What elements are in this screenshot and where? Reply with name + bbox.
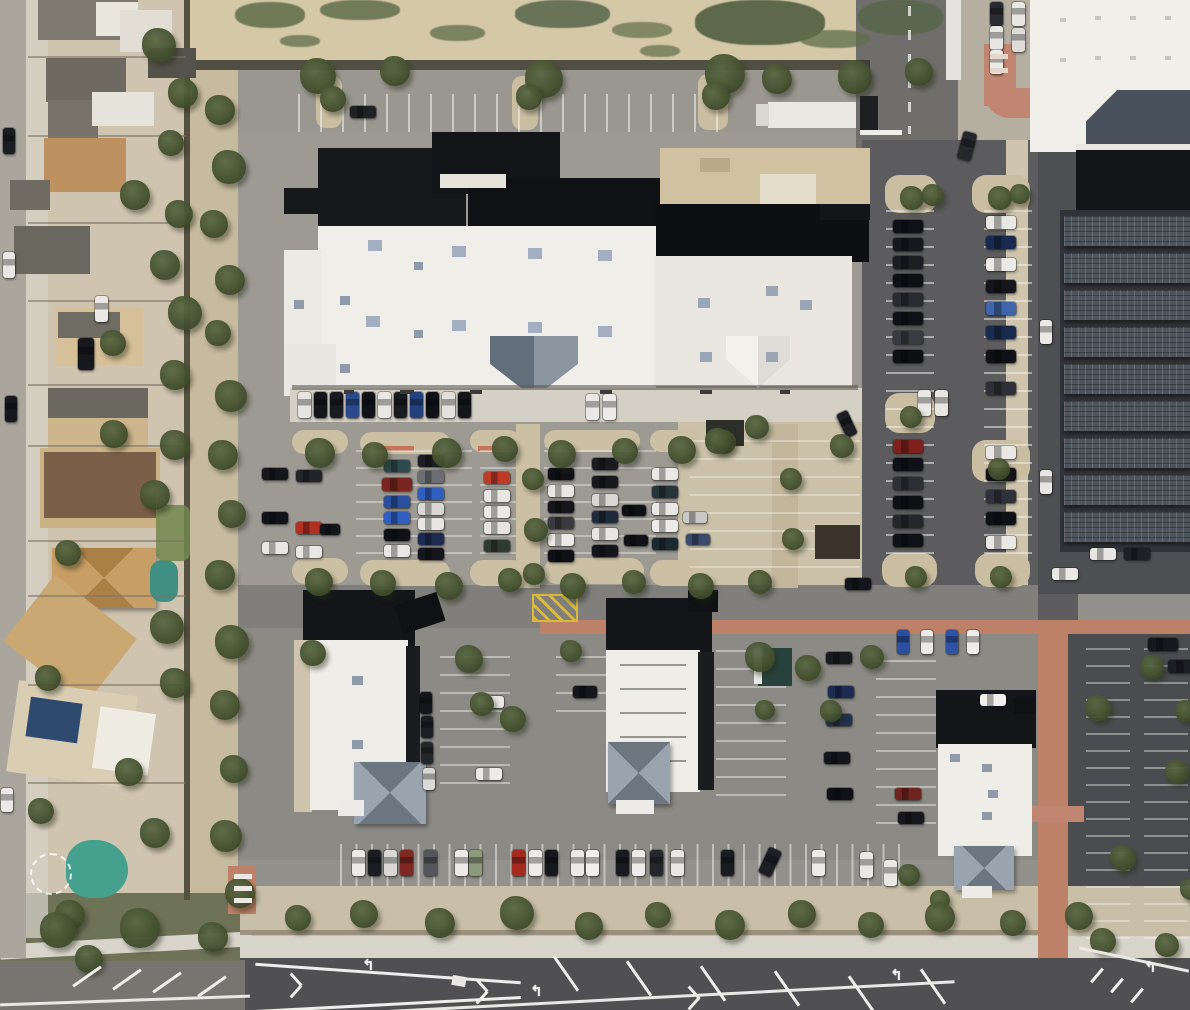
tree: [160, 430, 190, 460]
hvac: [982, 812, 992, 820]
car: [384, 496, 410, 508]
car: [1124, 548, 1150, 560]
tree: [860, 645, 884, 669]
car: [262, 468, 288, 480]
tree: [898, 864, 920, 886]
scrub: [640, 45, 680, 57]
tree: [215, 625, 249, 659]
roof-dot: [1165, 56, 1171, 60]
anchor-west-wing: [284, 250, 322, 346]
tree: [142, 28, 176, 62]
tree: [35, 665, 61, 691]
driveway-car: [78, 338, 94, 370]
padB-east-strip: [698, 652, 714, 790]
car: [721, 850, 734, 876]
car: [893, 238, 923, 251]
padB-tower-pyramid: [608, 742, 670, 804]
car: [898, 812, 924, 824]
car: [421, 716, 433, 738]
tree: [198, 922, 228, 952]
driveway-car: [95, 296, 108, 322]
car: [893, 458, 923, 471]
tree: [320, 86, 346, 112]
crosswalk-dash: [234, 898, 252, 903]
car: [812, 850, 825, 876]
house-roof: [48, 388, 148, 420]
solar-panel-array: [25, 697, 82, 744]
tree: [1155, 933, 1179, 957]
car: [484, 506, 510, 518]
tree: [622, 570, 646, 594]
car: [548, 534, 574, 546]
hvac: [698, 298, 710, 308]
car: [484, 490, 510, 502]
car: [980, 694, 1006, 706]
hvac: [340, 296, 350, 305]
roof-dot: [1130, 56, 1136, 60]
car: [418, 548, 444, 560]
car: [986, 326, 1016, 339]
car: [352, 850, 365, 876]
tree: [645, 902, 671, 928]
car: [632, 850, 645, 876]
tree: [305, 438, 335, 468]
tree: [925, 902, 955, 932]
tree: [1140, 655, 1164, 679]
car: [320, 524, 340, 535]
house-roof: [92, 92, 154, 126]
car: [622, 505, 646, 516]
car: [394, 392, 407, 418]
car: [893, 515, 923, 528]
car: [828, 686, 854, 698]
tree: [745, 415, 769, 439]
hvac: [294, 300, 304, 309]
skylight-strip: [440, 174, 506, 188]
car: [986, 350, 1016, 363]
street-car: [5, 396, 17, 422]
hvac: [352, 676, 363, 685]
hvac: [598, 250, 612, 261]
aerial-photo-shopping-plaza: ↰↰↰↰: [0, 0, 1190, 1010]
anchor-black-roof: [284, 188, 322, 214]
car: [418, 488, 444, 500]
tree: [705, 428, 731, 454]
storefront-door: [780, 390, 790, 394]
car: [548, 468, 574, 480]
car: [592, 545, 618, 557]
hvac: [414, 330, 423, 338]
tree: [820, 700, 842, 722]
wall-south: [240, 930, 1040, 935]
car: [986, 382, 1016, 395]
storefront-door: [600, 390, 612, 394]
car: [346, 392, 359, 418]
car: [671, 850, 684, 876]
tree: [220, 755, 248, 783]
tree: [1165, 760, 1189, 784]
hvac: [528, 248, 542, 259]
padC-black-jut: [1014, 698, 1036, 714]
car: [592, 458, 618, 470]
storefront-door: [400, 390, 414, 394]
tree: [212, 150, 246, 184]
tree: [300, 640, 326, 666]
tree: [100, 330, 126, 356]
pool-bean: [66, 840, 128, 898]
vertical-truck-topright: [946, 0, 961, 80]
car: [592, 528, 618, 540]
car: [424, 850, 437, 876]
hvac: [528, 322, 542, 333]
tree: [612, 438, 638, 464]
hvac: [982, 764, 992, 772]
car: [350, 106, 376, 118]
hvac: [766, 286, 778, 296]
car: [986, 512, 1016, 525]
car: [860, 852, 873, 878]
storefront-door: [470, 390, 482, 394]
tree: [762, 64, 792, 94]
car: [484, 540, 510, 552]
roof-dot: [1095, 56, 1101, 60]
tree: [745, 642, 775, 672]
hvac: [800, 300, 812, 310]
car: [420, 692, 432, 714]
tree: [470, 692, 494, 716]
tree: [1085, 695, 1111, 721]
tree: [900, 186, 924, 210]
tree: [516, 84, 542, 110]
car: [458, 392, 471, 418]
hvac: [452, 320, 466, 331]
tree: [40, 912, 76, 948]
solar-row: [1064, 512, 1190, 542]
tree: [350, 900, 378, 928]
red-path-vertical: [1038, 630, 1068, 958]
street-car: [1, 788, 13, 812]
car: [652, 520, 678, 532]
car: [652, 486, 678, 498]
solar-row: [1064, 401, 1190, 431]
car: [1148, 638, 1178, 651]
dark-truck: [860, 96, 878, 130]
yard-wall: [28, 595, 186, 597]
car: [262, 542, 288, 554]
tree: [218, 500, 246, 528]
roof-dot: [1130, 16, 1136, 20]
tree: [455, 645, 483, 673]
car: [296, 522, 322, 534]
construction-debris: [760, 174, 816, 204]
car: [893, 293, 923, 306]
solar-row: [1064, 253, 1190, 283]
car: [529, 850, 542, 876]
car: [484, 472, 510, 484]
car: [986, 302, 1016, 315]
padA-tower-pyramid: [354, 762, 426, 824]
car: [442, 392, 455, 418]
car: [423, 768, 435, 790]
car: [296, 470, 322, 482]
solar-row: [1064, 364, 1190, 394]
trampoline-ring: [30, 853, 72, 895]
tree: [215, 265, 245, 295]
solar-row: [1064, 216, 1190, 246]
stop-line: [860, 130, 902, 135]
tree: [548, 440, 576, 468]
hvac: [598, 326, 612, 337]
yard-wall: [28, 222, 186, 224]
car: [893, 477, 923, 490]
tree: [1000, 910, 1026, 936]
car: [384, 545, 410, 557]
tree: [1110, 845, 1136, 871]
hvac: [368, 240, 382, 251]
tree: [160, 360, 190, 390]
topright-black-band: [1076, 148, 1190, 214]
tree: [200, 210, 228, 238]
crosswalk-dash: [234, 874, 252, 879]
hvac: [988, 790, 998, 798]
car: [884, 860, 897, 886]
car: [512, 850, 525, 876]
car: [476, 768, 502, 780]
car: [935, 390, 948, 416]
car: [592, 511, 618, 523]
car: [571, 850, 584, 876]
car: [592, 476, 618, 488]
car: [1168, 660, 1190, 673]
car: [298, 392, 311, 418]
car: [296, 546, 322, 558]
tree: [120, 908, 160, 948]
car: [893, 440, 923, 453]
tree: [168, 78, 198, 108]
hvac: [700, 352, 712, 362]
car: [986, 216, 1016, 229]
tree: [755, 700, 775, 720]
hvac: [950, 754, 960, 762]
tree: [55, 540, 81, 566]
car: [986, 536, 1016, 549]
tree: [523, 563, 545, 585]
tree: [524, 518, 548, 542]
tree: [165, 200, 193, 228]
tree: [522, 468, 544, 490]
tree: [432, 438, 462, 468]
car: [455, 850, 468, 876]
front-walkway: [290, 388, 862, 422]
tree: [210, 690, 240, 720]
car: [686, 534, 710, 545]
turn-arrow: ↰: [530, 984, 540, 994]
street-car: [3, 128, 15, 154]
roof-dot: [1165, 16, 1171, 20]
tree: [788, 900, 816, 928]
car: [484, 522, 510, 534]
trash-enclosure: [815, 525, 860, 559]
car: [1012, 28, 1025, 52]
semi-cab: [756, 104, 769, 126]
car: [946, 630, 958, 654]
car: [683, 512, 707, 523]
yard-wall: [28, 540, 186, 542]
hvac: [340, 364, 350, 373]
scrub: [612, 22, 672, 38]
solar-row: [1064, 438, 1190, 468]
grass-patch: [156, 505, 190, 561]
tree: [748, 570, 772, 594]
car: [1052, 568, 1078, 580]
car: [827, 788, 853, 800]
car: [845, 578, 871, 590]
car: [990, 26, 1003, 50]
car: [897, 630, 909, 654]
car: [548, 501, 574, 513]
tree: [215, 380, 247, 412]
car: [330, 392, 343, 418]
roof-dot: [1060, 18, 1066, 22]
scrub: [280, 35, 320, 47]
tree: [1175, 700, 1190, 722]
tree: [435, 572, 463, 600]
tree: [782, 528, 804, 550]
car: [586, 850, 599, 876]
crosswalk-dash: [990, 54, 1008, 59]
car: [384, 460, 410, 472]
tree: [988, 186, 1012, 210]
car: [603, 394, 616, 420]
solar-row: [1064, 290, 1190, 320]
car: [378, 392, 391, 418]
tree: [168, 296, 202, 330]
car: [990, 2, 1003, 26]
tree: [305, 568, 333, 596]
storefront-shadow: [292, 385, 858, 390]
tree: [795, 655, 821, 681]
hvac: [766, 352, 778, 362]
car: [893, 256, 923, 269]
solar-row: [1064, 475, 1190, 505]
tree: [210, 820, 242, 852]
tree: [150, 610, 184, 644]
car: [418, 533, 444, 545]
stalls-right-lot: [1144, 648, 1188, 948]
tree: [225, 878, 255, 908]
tree: [988, 458, 1010, 480]
car: [652, 468, 678, 480]
padC-tower-pyramid: [954, 846, 1014, 890]
storefront-door: [700, 390, 712, 394]
car: [824, 752, 850, 764]
car: [986, 446, 1016, 459]
car: [548, 485, 574, 497]
car: [616, 850, 629, 876]
car: [362, 392, 375, 418]
car: [893, 350, 923, 363]
tree: [160, 668, 190, 698]
solar-row: [1064, 327, 1190, 357]
tree: [575, 912, 603, 940]
scrub: [430, 25, 485, 41]
padC-canopy: [962, 886, 992, 898]
tree: [830, 434, 854, 458]
hvac: [352, 740, 363, 749]
car: [586, 394, 599, 420]
car: [893, 274, 923, 287]
yard-wall: [28, 782, 186, 784]
hvac: [452, 246, 466, 257]
car: [384, 850, 397, 876]
tree: [780, 468, 802, 490]
tree: [115, 758, 143, 786]
car: [921, 630, 933, 654]
tree: [205, 95, 235, 125]
car: [548, 550, 574, 562]
car: [624, 535, 648, 546]
tree: [285, 905, 311, 931]
car: [986, 236, 1016, 249]
hvac: [414, 262, 423, 270]
tree: [838, 60, 872, 94]
padA-canopy: [338, 800, 364, 816]
car: [382, 478, 412, 491]
car: [368, 850, 381, 876]
crosswalk-dash: [234, 886, 252, 891]
tree: [120, 180, 150, 210]
car: [469, 850, 482, 876]
tree: [100, 420, 128, 448]
tree: [688, 573, 714, 599]
car: [548, 517, 574, 529]
car: [893, 496, 923, 509]
car: [1040, 470, 1052, 494]
tree: [922, 184, 944, 206]
turn-arrow: ↰: [890, 968, 900, 978]
semi-trailer: [768, 102, 856, 128]
car: [426, 392, 439, 418]
car: [314, 392, 327, 418]
scrub: [858, 0, 943, 35]
car: [573, 686, 597, 698]
house-roof-brown: [44, 452, 156, 518]
tree: [715, 910, 745, 940]
tree: [205, 560, 235, 590]
tree: [1010, 184, 1030, 204]
tree: [205, 320, 231, 346]
car: [893, 312, 923, 325]
house-roof-terracotta: [44, 138, 126, 192]
tree: [1065, 902, 1093, 930]
tree: [150, 250, 180, 280]
roof-dot: [1060, 58, 1066, 62]
tree: [208, 440, 238, 470]
car: [967, 630, 979, 654]
tree: [668, 436, 696, 464]
house-roof: [14, 226, 90, 274]
tree: [990, 566, 1012, 588]
tree: [158, 130, 184, 156]
car: [1040, 320, 1052, 344]
tree: [362, 442, 388, 468]
car: [895, 788, 921, 800]
tree: [560, 573, 586, 599]
construction-debris: [700, 158, 730, 172]
car: [893, 331, 923, 344]
scrub: [800, 30, 870, 48]
car: [1090, 548, 1116, 560]
